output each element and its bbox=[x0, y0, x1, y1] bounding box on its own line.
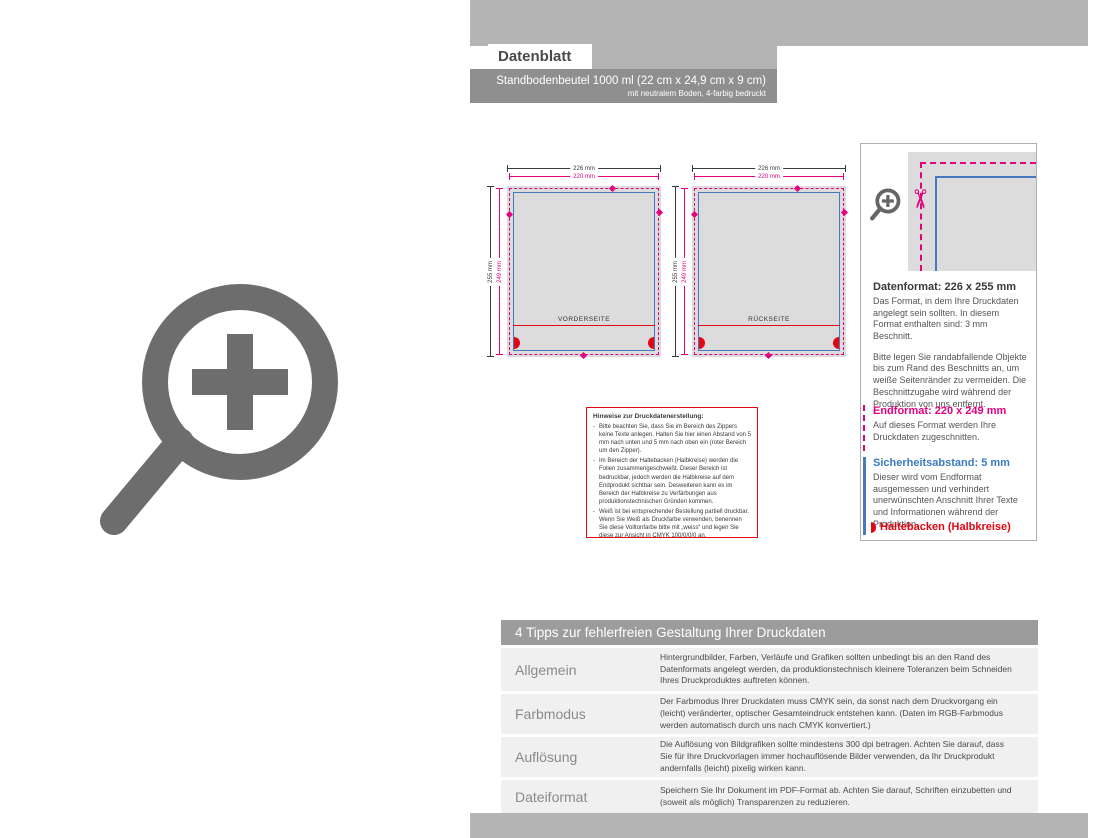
product-title-bar: Standbodenbeutel 1000 ml (22 cm x 24,9 c… bbox=[470, 69, 777, 103]
table-row: Farbmodus Der Farbmodus Ihrer Druckdaten… bbox=[501, 694, 1038, 734]
back-diagram: 226 mm 220 mm 255 mm 249 mm RÜCKSEITE bbox=[669, 160, 849, 365]
front-diagram: 226 mm 220 mm 255 mm 249 mm VORDERSEITE bbox=[484, 160, 664, 365]
top-strip bbox=[470, 0, 1088, 46]
print-notes-box: Hinweise zur Druckdatenerstellung: Bitte… bbox=[586, 407, 758, 538]
back-zipper-line bbox=[698, 325, 840, 326]
detail-bleed-area bbox=[908, 152, 1036, 271]
front-width-trim-dimension: 220 mm bbox=[509, 176, 659, 177]
legend-label: Haltebacken (Halbkreise) bbox=[880, 521, 1011, 533]
detail-safety-line-horizontal bbox=[935, 176, 1036, 178]
note-item: Weiß ist bei entsprechender Bestellung p… bbox=[593, 508, 751, 540]
page-title: Datenblatt bbox=[488, 44, 592, 69]
datenformat-text: Bitte legen Sie randabfallende Objekte b… bbox=[873, 352, 1028, 410]
tip-row-label: Farbmodus bbox=[501, 694, 660, 734]
note-item: Im Bereich der Haltebacken (Halbkreise) … bbox=[593, 457, 751, 506]
detail-safety-line-vertical bbox=[935, 176, 937, 271]
scissors-icon: ✂ bbox=[907, 188, 933, 210]
note-item: Bitte beachten Sie, dass Sie im Bereich … bbox=[593, 423, 751, 455]
tip-row-label: Allgemein bbox=[501, 648, 660, 691]
datenformat-heading: Datenformat: 226 x 255 mm bbox=[873, 281, 1028, 293]
zoom-plus-icon bbox=[90, 278, 360, 550]
back-width-outer-dimension: 226 mm bbox=[692, 168, 846, 169]
back-label: RÜCKSEITE bbox=[698, 316, 840, 323]
tip-row-text: Die Auflösung von Bildgrafiken sollte mi… bbox=[660, 735, 1016, 779]
half-circle-icon bbox=[871, 522, 876, 533]
datenformat-section: Datenformat: 226 x 255 mm Das Format, in… bbox=[873, 281, 1028, 419]
endformat-heading: Endformat: 220 x 249 mm bbox=[873, 405, 1028, 417]
back-holding-jaw-right bbox=[833, 337, 839, 349]
table-row: Dateiformat Speichern Sie Ihr Dokument i… bbox=[501, 780, 1038, 813]
back-width-trim-dimension: 220 mm bbox=[694, 176, 844, 177]
safety-accent-line bbox=[863, 457, 866, 535]
tip-row-text: Speichern Sie Ihr Dokument im PDF-Format… bbox=[660, 781, 1016, 813]
endformat-section: Endformat: 220 x 249 mm Auf dieses Forma… bbox=[873, 405, 1028, 452]
front-zipper-line bbox=[513, 325, 655, 326]
front-holding-jaw-right bbox=[648, 337, 654, 349]
tip-row-label: Dateiformat bbox=[501, 780, 660, 813]
product-subtitle: mit neutralem Boden, 4-farbig bedruckt bbox=[628, 89, 766, 98]
datenformat-text: Das Format, in dem Ihre Druckdaten angel… bbox=[873, 296, 1028, 343]
endformat-text: Auf dieses Format werden Ihre Druckdaten… bbox=[873, 420, 1028, 443]
zoom-plus-icon bbox=[869, 188, 903, 222]
table-row: Allgemein Hintergrundbilder, Farben, Ver… bbox=[501, 648, 1038, 691]
front-safety-line bbox=[513, 192, 655, 351]
front-height-trim-dimension: 249 mm bbox=[499, 188, 500, 355]
tip-row-text: Der Farbmodus Ihrer Druckdaten muss CMYK… bbox=[660, 692, 1016, 736]
back-safety-line bbox=[698, 192, 840, 351]
detail-cut-line-horizontal bbox=[920, 162, 1036, 164]
notes-title: Hinweise zur Druckdatenerstellung: bbox=[593, 413, 751, 420]
detail-cut-line-vertical bbox=[920, 162, 922, 271]
table-row: Auflösung Die Auflösung von Bildgrafiken… bbox=[501, 737, 1038, 777]
front-label: VORDERSEITE bbox=[513, 316, 655, 323]
datasheet-page: Datenblatt Standbodenbeutel 1000 ml (22 … bbox=[0, 0, 1117, 838]
back-height-trim-dimension: 249 mm bbox=[684, 188, 685, 355]
sicherheitsabstand-heading: Sicherheitsabstand: 5 mm bbox=[873, 457, 1028, 469]
top-strip-extension bbox=[592, 46, 777, 69]
front-height-outer-dimension: 255 mm bbox=[490, 186, 491, 357]
back-height-outer-dimension: 255 mm bbox=[675, 186, 676, 357]
tip-row-text: Hintergrundbilder, Farben, Verläufe und … bbox=[660, 648, 1016, 692]
holding-jaw-legend: Haltebacken (Halbkreise) bbox=[871, 521, 1011, 533]
front-width-outer-dimension: 226 mm bbox=[507, 168, 661, 169]
bottom-strip bbox=[470, 813, 1088, 838]
tip-row-label: Auflösung bbox=[501, 737, 660, 777]
product-title: Standbodenbeutel 1000 ml (22 cm x 24,9 c… bbox=[496, 75, 766, 87]
format-info-panel: ✂ Datenformat: 226 x 255 mm Das Format, … bbox=[860, 143, 1037, 541]
tips-table-header: 4 Tipps zur fehlerfreien Gestaltung Ihre… bbox=[501, 620, 1038, 645]
endformat-accent-line bbox=[863, 405, 865, 451]
